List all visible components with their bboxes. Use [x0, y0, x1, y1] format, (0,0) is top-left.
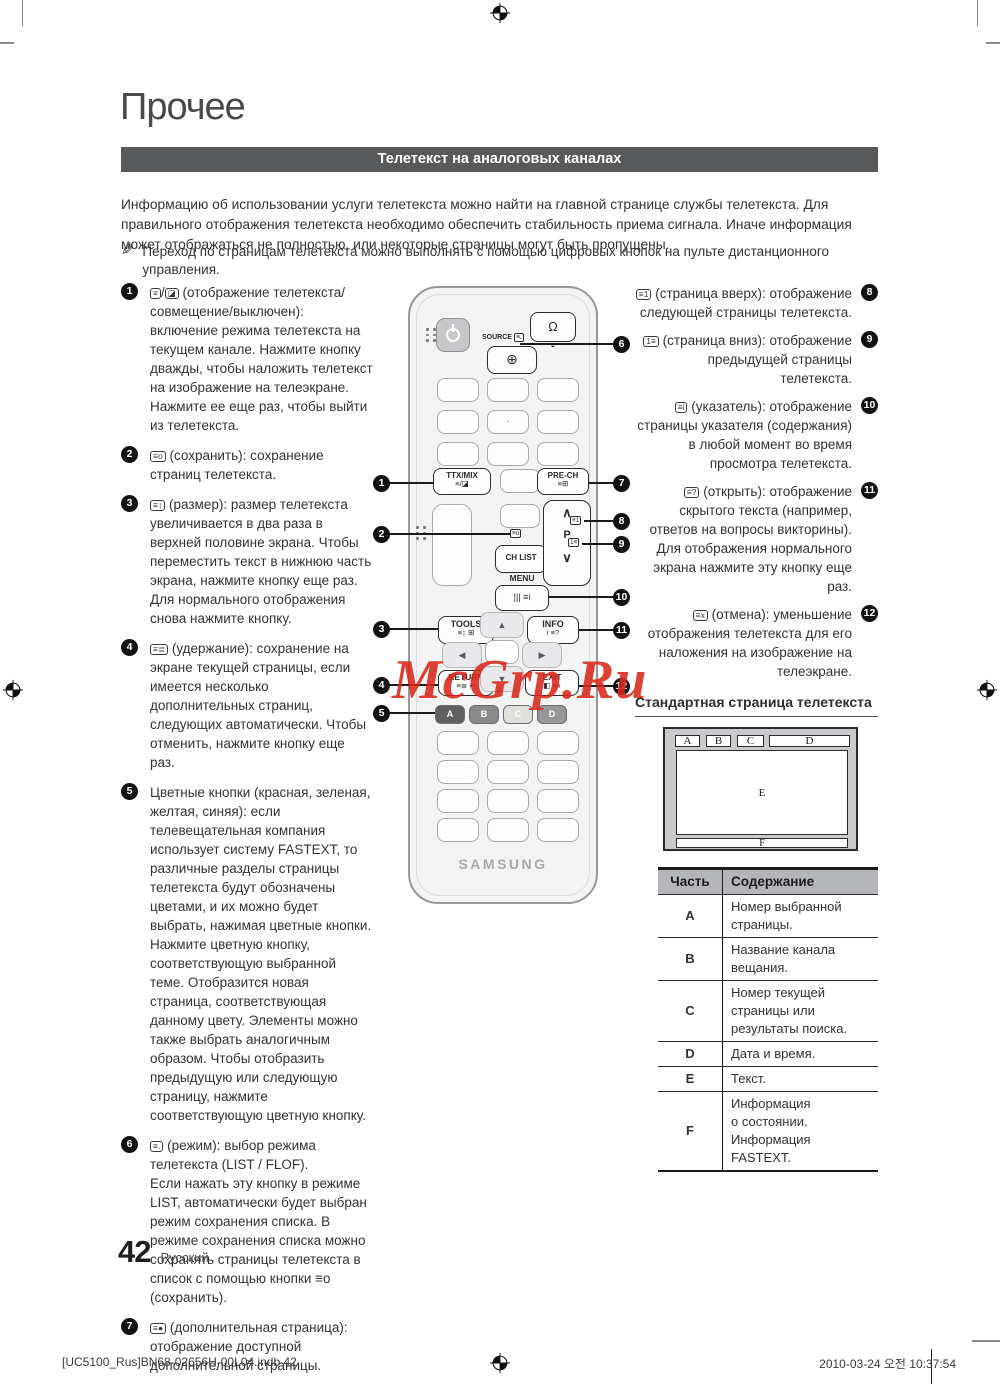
region-d: D — [769, 735, 850, 747]
function-button — [537, 760, 579, 784]
power-button — [436, 318, 470, 352]
callout-badge: 4 — [373, 677, 390, 694]
pre-ch-icons: ≡⊞ — [538, 480, 588, 488]
teletext-subpage-icon: ≡● — [150, 1323, 166, 1334]
bulb-icon: Ω — [548, 319, 558, 334]
function-button — [537, 731, 579, 755]
source-icon: ⊕ — [506, 351, 518, 367]
number-button — [487, 378, 529, 402]
callout-badge: 9 — [613, 536, 630, 553]
note-line: ✎ Переход по страницам телетекста можно … — [121, 243, 883, 279]
table-row: BНазвание канала вещания. — [658, 938, 878, 981]
table-row: EТекст. — [658, 1067, 878, 1092]
callout-badge: 6 — [121, 1136, 138, 1153]
volume-rocker — [432, 504, 472, 586]
section-banner: Телетекст на аналоговых каналах — [121, 147, 878, 172]
instruction-item: 2 ≡o (сохранить): сохранение страниц тел… — [121, 446, 373, 484]
function-button — [487, 760, 529, 784]
crop-mark — [972, 1340, 1000, 1342]
index-icon: ≡i — [675, 402, 688, 413]
remote-control-figure: SOURCE ≡. ⊕ Ω - · TTX/MIX≡/◪ PRE-CH≡⊞ ≡o… — [370, 286, 640, 911]
table-row: AНомер выбранной страницы. — [658, 895, 878, 938]
callout-badge: 11 — [613, 622, 630, 639]
dot-mark: · — [506, 416, 509, 427]
ttx-mix-icons: ≡/◪ — [434, 480, 490, 488]
function-button — [487, 789, 529, 813]
callout-line — [520, 343, 620, 345]
registration-mark — [2, 679, 24, 701]
callout-badge: 4 — [121, 639, 138, 656]
ttx-mix-button: TTX/MIX≡/◪ — [433, 468, 491, 495]
teletext-size-icon: ≡↕ — [150, 500, 165, 511]
column-header: Содержание — [723, 869, 879, 895]
function-button — [437, 731, 479, 755]
callout-badge: 9 — [861, 331, 878, 348]
channel-up-icon: ∧ — [544, 506, 590, 520]
teletext-mode-mini-icon: ≡. — [514, 333, 524, 342]
callout-line — [549, 596, 620, 598]
number-button — [437, 442, 479, 466]
instruction-item: 4 ≡≣ (удержание): сохранение на экране т… — [121, 639, 373, 772]
watermark: McGrp.Ru — [392, 648, 647, 712]
registration-mark — [489, 2, 511, 24]
callout-badge: 8 — [861, 284, 878, 301]
up-arrow-icon: ▲ — [481, 613, 523, 637]
right-instructions: ≡1 (страница вверх): отображение следующ… — [635, 284, 878, 1172]
instruction-item: ≡? (открыть): отображение скрытого текст… — [635, 482, 878, 596]
instruction-item: 1 ≡/◪ (отображение телетекста/совмещение… — [121, 283, 373, 435]
function-button — [437, 818, 479, 842]
callout-badge: 3 — [373, 621, 390, 638]
menu-icons: ||| ≡i — [514, 592, 531, 602]
info-icons: i ≡? — [528, 629, 578, 637]
function-button — [537, 818, 579, 842]
info-button: INFOi ≡? — [527, 616, 579, 644]
crop-mark — [0, 42, 14, 44]
crop-mark — [22, 0, 23, 26]
callout-badge: 11 — [861, 482, 878, 499]
callout-badge: 5 — [121, 783, 138, 800]
teletext-store-icon: ≡o — [150, 451, 166, 462]
samsung-logo: SAMSUNG — [408, 856, 598, 872]
language-label: Русский — [160, 1250, 208, 1265]
number-button — [537, 378, 579, 402]
mute-button — [500, 504, 540, 528]
page-up-icon: ≡1 — [636, 289, 652, 300]
footer-timestamp: 2010-03-24 오전 10:37:54 — [819, 1355, 956, 1372]
region-c: C — [737, 735, 764, 747]
number-button — [537, 442, 579, 466]
dpad-up-button: ▲ — [480, 612, 524, 638]
registration-mark — [976, 679, 998, 701]
number-button — [537, 410, 579, 434]
source-label: SOURCE ≡. — [482, 333, 524, 342]
number-button: · — [487, 410, 529, 434]
teletext-hold-icon: ≡≣ — [150, 644, 168, 655]
number-button — [487, 442, 529, 466]
bulb-minus: - — [548, 340, 558, 352]
cancel-icon: ≡x — [693, 610, 708, 621]
callout-badge: 7 — [613, 475, 630, 492]
pre-ch-button: PRE-CH≡⊞ — [537, 468, 589, 495]
source-button: ⊕ — [487, 346, 537, 374]
table-row: CНомер текущей страницы или результаты п… — [658, 981, 878, 1042]
manual-page: Прочее Телетекст на аналоговых каналах И… — [0, 0, 1000, 1384]
teletext-page-diagram: A B C D E F — [663, 727, 858, 851]
callout-badge: 10 — [613, 589, 630, 606]
callout-badge: 1 — [121, 283, 138, 300]
page-number: 42 — [118, 1234, 150, 1270]
region-b: B — [706, 735, 731, 747]
instruction-item: 5 Цветные кнопки (красная, зеленая, желт… — [121, 783, 373, 1125]
callout-badge: 8 — [613, 513, 630, 530]
callout-badge: 2 — [121, 446, 138, 463]
callout-badge: 10 — [861, 397, 878, 414]
teletext-mix-icon: ◪ — [165, 288, 179, 299]
callout-badge: 3 — [121, 495, 138, 512]
page-up-mini-icon: ≡1 — [570, 516, 581, 525]
reveal-icon: ≡? — [684, 487, 700, 498]
function-button — [437, 760, 479, 784]
table-row: DДата и время. — [658, 1042, 878, 1067]
callout-badge: 6 — [613, 336, 630, 353]
instruction-item: 3 ≡↕ (размер): размер телетекста увеличи… — [121, 495, 373, 628]
instruction-item: 1≡ (страница вниз): отображение предыдущ… — [635, 331, 878, 388]
pencil-icon: ✎ — [121, 243, 134, 279]
page-number-block: 42 Русский — [118, 1234, 209, 1270]
crop-mark — [977, 0, 978, 26]
number-button — [437, 410, 479, 434]
footer-filename: [UC5100_Rus]BN68-02656H-00L04.indb 42 — [62, 1355, 297, 1369]
ch-list-button: CH LIST — [495, 545, 547, 573]
callout-line — [381, 533, 510, 535]
callout-badge: 5 — [373, 705, 390, 722]
function-button — [487, 818, 529, 842]
column-header: Часть — [658, 869, 723, 895]
callout-badge: 2 — [373, 526, 390, 543]
crop-mark — [986, 42, 1000, 44]
left-instructions: 1 ≡/◪ (отображение телетекста/совмещение… — [121, 283, 373, 1384]
region-f: F — [676, 838, 848, 848]
page-down-mini-icon: 1≡ — [568, 538, 579, 547]
power-icon — [446, 328, 460, 342]
menu-label: MENU — [495, 573, 549, 583]
teletext-mode-icon: ≡. — [150, 1141, 163, 1152]
teletext-display-icon: ≡ — [150, 288, 161, 299]
channel-label: P — [544, 529, 590, 542]
table-header-row: Часть Содержание — [658, 869, 878, 895]
callout-badge: 7 — [121, 1318, 138, 1335]
parts-table: Часть Содержание AНомер выбранной страни… — [658, 867, 878, 1172]
function-button — [487, 731, 529, 755]
zero-button — [500, 469, 540, 493]
store-mini-icon: ≡o — [510, 529, 521, 538]
channel-down-icon: ∨ — [544, 551, 590, 565]
menu-button: ||| ≡i — [495, 585, 549, 611]
registration-mark — [489, 1352, 511, 1374]
callout-badge: 12 — [861, 605, 878, 622]
instruction-item: ≡1 (страница вверх): отображение следующ… — [635, 284, 878, 322]
region-a: A — [675, 735, 700, 747]
page-down-icon: 1≡ — [643, 336, 659, 347]
note-text: Переход по страницам телетекста можно вы… — [142, 243, 883, 279]
instruction-item: 6 ≡. (режим): выбор режима телетекста (L… — [121, 1136, 373, 1307]
page-title: Прочее — [120, 86, 245, 129]
function-button — [537, 789, 579, 813]
table-row: FИнформация о состоянии. Информация FAST… — [658, 1092, 878, 1172]
region-e: E — [676, 750, 848, 835]
instruction-item: ≡i (указатель): отображение страницы ука… — [635, 397, 878, 473]
callout-badge: 1 — [373, 475, 390, 492]
number-button — [437, 378, 479, 402]
standard-page-heading: Стандартная страница телетекста — [635, 694, 878, 717]
instruction-item: ≡x (отмена): уменьшение отображения теле… — [635, 605, 878, 681]
bulb-button: Ω — [530, 312, 576, 342]
function-button — [437, 789, 479, 813]
